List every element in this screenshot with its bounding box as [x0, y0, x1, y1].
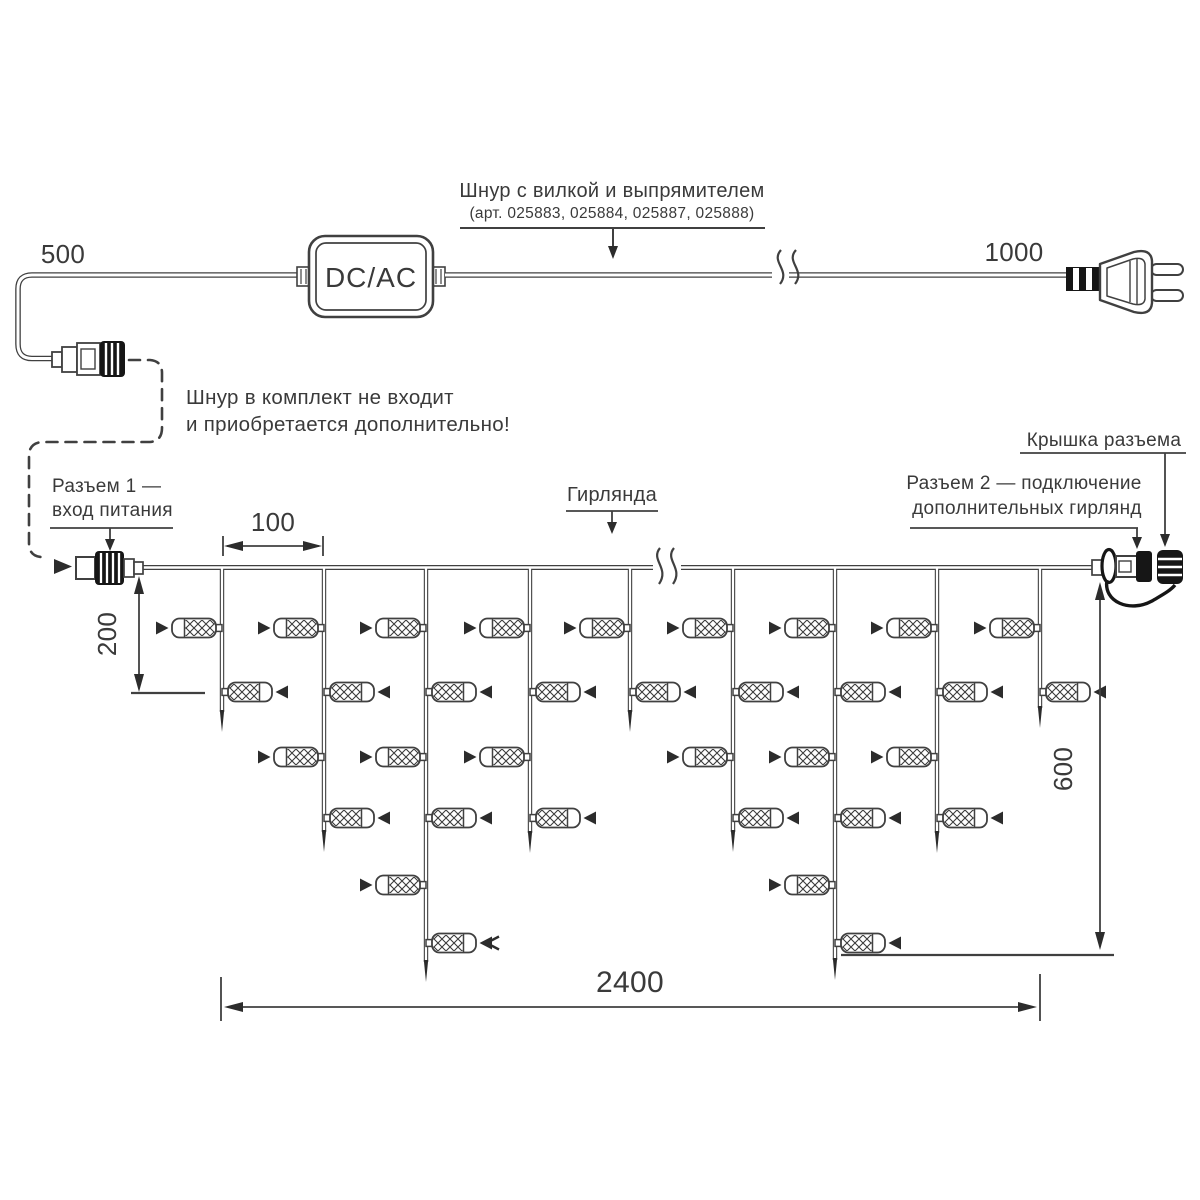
dc-ac-converter: DC/AC — [297, 236, 445, 317]
dim-2400-label: 2400 — [596, 966, 664, 999]
led-bulb-icon — [733, 809, 799, 828]
led-bulb-icon — [258, 619, 324, 638]
led-bulb-icon — [769, 619, 835, 638]
cord-title: Шнур с вилкой и выпрямителем — [459, 180, 764, 202]
power-cord-right-segment — [445, 250, 1066, 284]
note-line2: и приобретается дополнительно! — [186, 413, 510, 436]
dim-100-label: 100 — [251, 507, 295, 537]
garland-label: Гирлянда — [566, 484, 658, 534]
led-bulb-icon — [360, 748, 426, 767]
dim-1000-label: 1000 — [984, 237, 1043, 267]
cord-title-block: Шнур с вилкой и выпрямителем (арт. 02588… — [459, 180, 765, 259]
garland-connector-1 — [76, 551, 143, 585]
dimension-garland-length: 2400 — [221, 966, 1040, 1021]
led-bulb-icon — [937, 809, 1003, 828]
cord-break-mark — [778, 250, 799, 284]
led-bulb-icon — [426, 683, 492, 702]
connector-cap-icon — [1157, 550, 1183, 584]
led-bulb-icon — [937, 683, 1003, 702]
dashed-connection-route — [29, 360, 162, 574]
led-bulb-icon — [258, 748, 324, 767]
led-bulb-icon — [360, 619, 426, 638]
led-bulb-icon — [667, 619, 733, 638]
led-bulb-icon — [464, 748, 530, 767]
dim-500-label: 500 — [41, 239, 85, 269]
led-bulb-icon — [1040, 683, 1106, 702]
led-bulb-icon — [324, 809, 390, 828]
dim-600-label: 600 — [1048, 747, 1078, 791]
led-bulb-icon — [835, 934, 901, 953]
power-plug-icon — [1066, 251, 1183, 313]
led-bulb-icon — [667, 748, 733, 767]
led-bulb-icon — [871, 619, 937, 638]
dimension-max-drop: 600 — [841, 582, 1114, 955]
led-bulb-icon — [733, 683, 799, 702]
led-bulb-icon — [564, 619, 630, 638]
led-bulb-icon — [769, 748, 835, 767]
led-bulb-icon — [871, 748, 937, 767]
led-bulb-icon — [530, 809, 596, 828]
converter-label: DC/AC — [325, 262, 417, 293]
led-bulb-icon — [156, 619, 222, 638]
led-bulb-icon — [464, 619, 530, 638]
diagram-canvas: DC/AC 500 1000 Шнур с вилкой и выпрямите… — [0, 0, 1200, 1200]
route-arrowhead-icon — [54, 559, 72, 574]
connector2-label: Разъем 2 — подключение дополнительных ги… — [906, 473, 1142, 549]
led-bulb-icon — [324, 683, 390, 702]
leader-arrowhead-icon — [608, 246, 618, 259]
led-bulb-icon — [769, 876, 835, 895]
led-bulb-icon — [835, 683, 901, 702]
garland-label-text: Гирлянда — [567, 484, 658, 506]
led-bulb-icon — [222, 683, 288, 702]
cord-articles: (арт. 025883, 025884, 025887, 025888) — [469, 205, 754, 222]
dimension-drop-spacing: 100 — [223, 507, 323, 556]
cord-connector-icon — [52, 341, 125, 377]
cap-label-text: Крышка разъема — [1027, 430, 1182, 451]
connector2-label-line2: дополнительных гирлянд — [912, 498, 1142, 519]
led-bulb-icon — [630, 683, 696, 702]
led-bulb-icon — [426, 809, 492, 828]
power-cord-left-segment — [18, 275, 302, 359]
dim-200-label: 200 — [92, 612, 122, 656]
wire-break-mark — [657, 548, 676, 584]
icicle-garland-diagram: DC/AC 500 1000 Шнур с вилкой и выпрямите… — [0, 0, 1200, 1200]
led-bulb-icon — [835, 809, 901, 828]
connector1-label: Разъем 1 — вход питания — [50, 476, 173, 551]
connector1-label-line2: вход питания — [52, 500, 173, 521]
cord-note: Шнур в комплект не входит и приобретаетс… — [186, 386, 510, 436]
connector2-label-line1: Разъем 2 — подключение — [906, 473, 1141, 494]
led-bulb-icon — [974, 619, 1040, 638]
led-bulb-icon — [360, 876, 426, 895]
connector1-label-line1: Разъем 1 — — [52, 476, 161, 497]
note-line1: Шнур в комплект не входит — [186, 386, 454, 409]
led-bulb-icon — [426, 934, 492, 953]
led-bulb-icon — [530, 683, 596, 702]
